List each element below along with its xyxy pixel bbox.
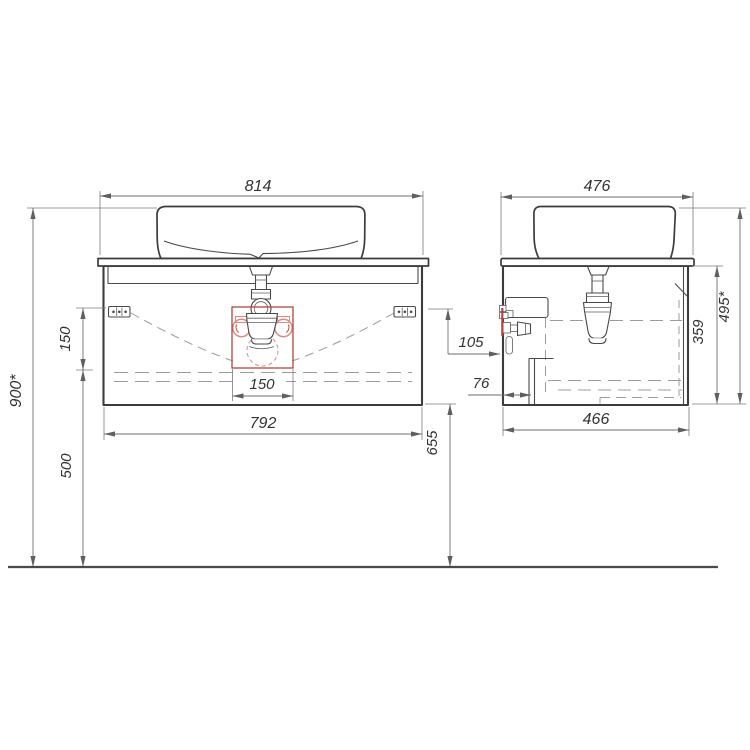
- svg-text:792: 792: [250, 415, 277, 432]
- dim-under-clearance-500: 500: [58, 370, 83, 567]
- svg-text:655: 655: [424, 430, 441, 456]
- svg-text:359: 359: [690, 319, 707, 345]
- wall-outlet-escutcheon: [506, 337, 513, 355]
- siphon-side: [584, 267, 612, 344]
- door-swing-arc-right: [292, 313, 394, 361]
- door-swing-arc-left: [131, 313, 233, 361]
- dim-cabinet-depth-466: 466: [503, 407, 689, 436]
- countertop-front: [98, 259, 429, 267]
- drawer-lower-front-side: [529, 359, 554, 405]
- svg-text:466: 466: [583, 411, 610, 428]
- svg-text:105: 105: [458, 334, 484, 351]
- hinge-right: [394, 307, 416, 318]
- overflow-box-side: [506, 298, 549, 318]
- dim-cabinet-width-792: 792: [104, 407, 422, 440]
- side-view: 476 466 359 495* 105: [428, 178, 746, 436]
- dim-outlet-offset-105: 105: [428, 309, 500, 354]
- dim-cabinet-height-359: 359: [690, 266, 723, 404]
- dim-drawer-inset-76: 76: [468, 375, 531, 395]
- svg-text:814: 814: [245, 178, 272, 195]
- technical-drawing-page: 814 900* 150 500 150: [0, 0, 750, 750]
- svg-text:150: 150: [57, 326, 74, 352]
- mount-dowel-right: [275, 317, 292, 337]
- dim-bottom-height-655: 655: [424, 404, 456, 567]
- hinge-left: [109, 307, 131, 318]
- svg-text:900*: 900*: [8, 374, 25, 408]
- sink-front: [157, 207, 365, 259]
- svg-text:495*: 495*: [716, 290, 733, 322]
- svg-text:476: 476: [584, 178, 611, 195]
- svg-text:76: 76: [473, 375, 490, 392]
- svg-text:150: 150: [249, 376, 275, 393]
- drawing-canvas: 814 900* 150 500 150: [0, 0, 750, 750]
- sink-side: [534, 207, 675, 259]
- dim-drain-zone-150: 150: [233, 369, 294, 401]
- front-view: 814 900* 150 500 150: [8, 178, 456, 567]
- cabinet-side-chamfer: [675, 284, 688, 297]
- countertop-side: [501, 259, 694, 267]
- svg-text:500: 500: [58, 453, 75, 479]
- dim-hinge-offset-150: 150: [57, 308, 106, 370]
